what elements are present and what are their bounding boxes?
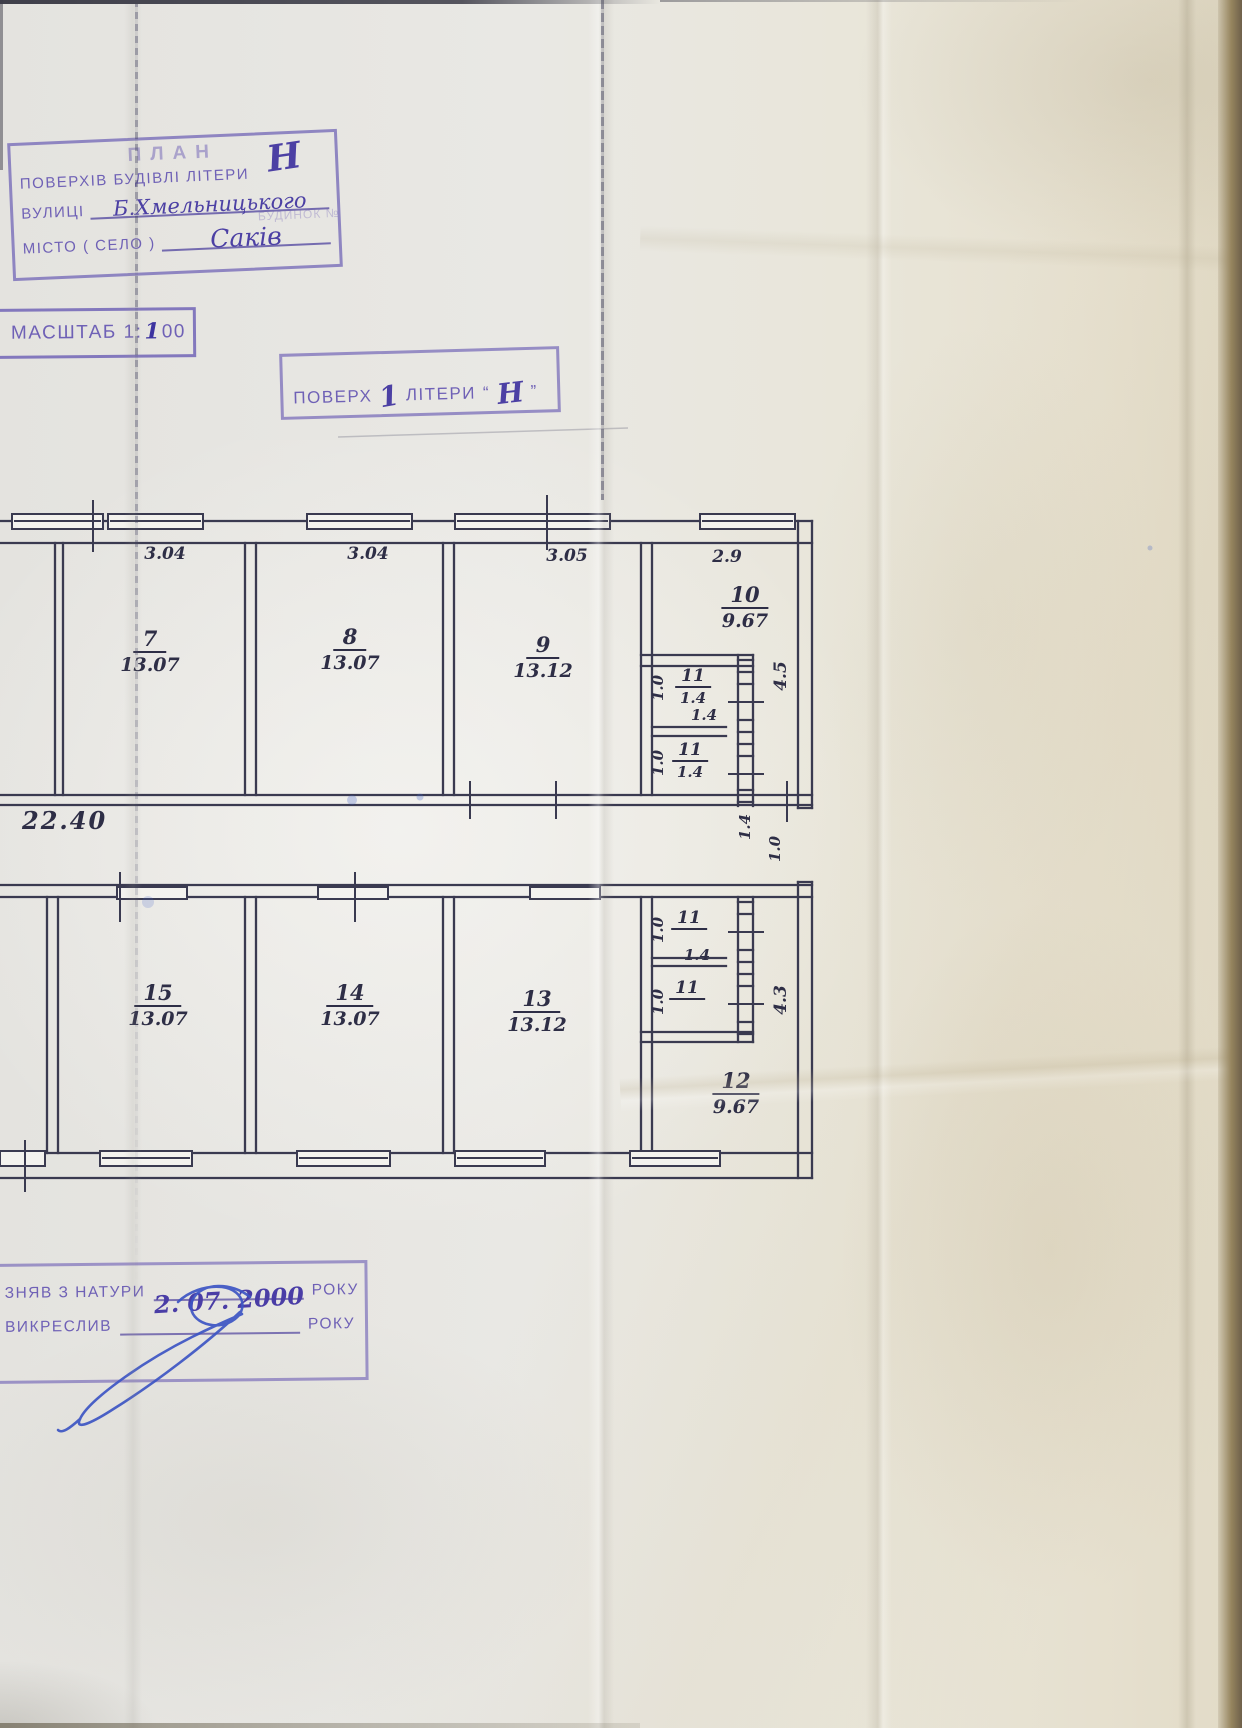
page-edge-top-faint [660,0,1080,2]
dim-wc-bottom-width: 1.4 [684,946,710,964]
room-number: 14 [326,982,373,1007]
dim-top-room10: 2.9 [712,547,742,567]
page-edge-left [0,0,3,170]
surveyed-label: ЗНЯВ З НАТУРИ [5,1283,146,1302]
room-area: 9.67 [721,609,768,631]
floor-letter-stamp: ПОВЕРХ 1 ЛІТЕРИ “ Н ” [279,346,561,420]
dim-top-room7: 3.04 [144,544,185,564]
room-number: 8 [334,626,367,651]
page-edge-bottom [0,1723,640,1728]
room-number: 15 [134,982,181,1007]
room-label-15: 15 13.07 [128,982,188,1029]
page-edge-right [1218,0,1242,1728]
room-area [671,930,707,933]
dim-side-bottom: 4.3 [771,985,791,1015]
dim-side-top: 4.5 [771,661,791,691]
scanned-floor-plan-sheet: ПЛАН ПОВЕРХІВ БУДІВЛІ ЛІТЕРИ Н ВУЛИЦІ Б.… [0,0,1242,1728]
handwritten-city: Саків [210,221,283,253]
room-area: 1.4 [672,762,708,780]
handwritten-scale-digit: 1 [144,318,161,344]
city-label: МІСТО ( СЕЛО ) [22,235,156,258]
room-number: 10 [721,584,768,609]
room-area: 13.07 [320,651,380,673]
room-number: 11 [671,910,707,930]
fold-crease-far-right [1178,0,1196,1728]
room-number: 12 [712,1070,759,1095]
street-label: ВУЛИЦІ [21,203,85,223]
plan-header-stamp: ПЛАН ПОВЕРХІВ БУДІВЛІ ЛІТЕРИ Н ВУЛИЦІ Б.… [7,129,343,281]
dim-entry-depth: 1.0 [766,836,784,862]
room-area: 13.12 [513,659,573,681]
scale-suffix: 00 [162,321,186,343]
room-label-13: 13 13.12 [507,988,567,1035]
room-number: 13 [513,988,560,1013]
wrinkle-horizontal-2 [640,226,1242,273]
room-label-9: 9 13.12 [513,634,573,681]
room-number: 11 [672,742,708,762]
room-area: 13.07 [320,1007,380,1029]
letter-label: ЛІТЕРИ [406,383,477,405]
room-label-7: 7 13.07 [120,628,180,675]
dim-top-room8: 3.04 [347,544,388,564]
scale-stamp: МАСШТАБ 1:100 [0,307,196,359]
drawn-by-label: ВИКРЕСЛИВ [5,1318,112,1337]
signature-line [120,1314,300,1336]
room-area: 9.67 [712,1095,759,1117]
dim-wc-top-width: 1.4 [691,706,717,724]
room-label-wc-bottom-2: 11 [669,980,705,1003]
room-label-wc-top-2: 11 1.4 [672,742,708,780]
dim-wc-bottom-1-depth: 1.0 [649,917,667,943]
floor-label: ПОВЕРХ [293,386,373,408]
dim-wc-top-2-depth: 1.0 [649,750,667,776]
dim-top-room9: 3.05 [546,546,587,566]
corner-shadow-bottom-left [0,1660,160,1728]
room-label-8: 8 13.07 [320,626,380,673]
room-number: 7 [134,628,167,653]
room-area: 1.4 [675,688,711,706]
open-quote: “ [483,383,491,403]
close-quote: ” [530,382,538,402]
room-area: 13.07 [120,653,180,675]
page-edge-top [0,0,660,4]
dim-wc-bottom-2-depth: 1.0 [649,989,667,1015]
scale-label: МАСШТАБ 1: [11,322,143,345]
handwritten-floor-number: 1 [378,388,400,408]
year-label-2: РОКУ [308,1315,355,1333]
fold-crease-center [601,0,604,500]
handwritten-building-letter: Н [264,134,304,181]
room-area: 13.07 [128,1007,188,1029]
dim-corridor-length: 22.40 [22,806,107,835]
room-area [669,1000,705,1003]
room-label-14: 14 13.07 [320,982,380,1029]
room-number: 11 [669,980,705,1000]
room-area: 13.12 [507,1013,567,1035]
fold-crease-right [866,0,892,1728]
room-label-wc-bottom-1: 11 [671,910,707,933]
survey-stamp: ЗНЯВ З НАТУРИ 2. 07. 2000 РОКУ ВИКРЕСЛИВ… [0,1260,369,1384]
room-label-wc-top-1: 11 1.4 [675,668,711,706]
year-label-1: РОКУ [312,1281,359,1299]
room-number: 11 [675,668,711,688]
dim-wc-top-1-depth: 1.0 [649,675,667,701]
pencil-line [338,428,628,437]
dim-entry-width: 1.4 [736,814,754,840]
room-number: 9 [527,634,560,659]
room-label-12: 12 9.67 [712,1070,759,1117]
room-label-10: 10 9.67 [721,584,768,631]
handwritten-letter: Н [496,384,524,404]
